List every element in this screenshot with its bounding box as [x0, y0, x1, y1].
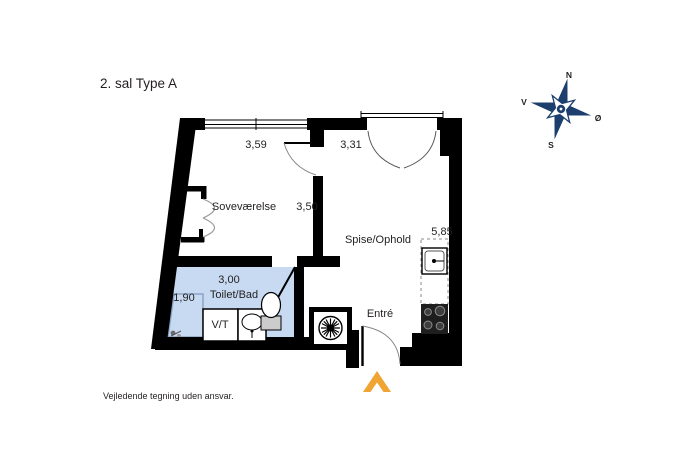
divider-wall — [313, 176, 323, 266]
compass-label-o: Ø — [595, 113, 602, 123]
stove — [421, 304, 448, 334]
dim-bath-depth: 1,90 — [173, 292, 194, 304]
vent-shaft — [314, 312, 347, 344]
balcony-door-right-swing — [404, 131, 436, 168]
bottom-wall-right — [400, 347, 462, 366]
bottom-wall-kitchen — [412, 333, 449, 348]
balcony-door — [361, 111, 443, 168]
bath-top-wall-right — [297, 256, 340, 267]
room-label-toilet-bad: Toilet/Bad — [210, 289, 258, 301]
dim-balcony-door-width: 3,31 — [340, 139, 361, 151]
dim-window-width: 3,59 — [245, 139, 266, 151]
compass-label-v: V — [521, 97, 527, 107]
entrance-door — [363, 326, 401, 366]
compass-label-n: N — [566, 70, 572, 80]
disclaimer-text: Vejledende tegning uden ansvar. — [103, 391, 234, 401]
room-label-entre: Entré — [367, 308, 393, 320]
kitchen — [421, 239, 448, 334]
bath-top-wall-left — [172, 256, 272, 267]
dim-living-depth: 5,85 — [431, 226, 452, 238]
room-label-vt: V/T — [211, 319, 228, 331]
room-label-sovevaerelse: Soveværelse — [212, 201, 276, 213]
balcony-door-left-swing — [368, 131, 400, 168]
dim-bath-width: 3,00 — [218, 274, 239, 286]
page-title: 2. sal Type A — [100, 76, 177, 91]
balcony-railing — [361, 111, 443, 120]
vestibule-left-wall — [346, 330, 359, 368]
top-wall-left-corner — [180, 118, 204, 130]
bathroom-right-wall — [294, 267, 304, 348]
toilet — [261, 293, 281, 331]
compass-label-s: S — [548, 140, 554, 150]
dim-bedroom-depth: 3,50 — [296, 201, 317, 213]
floor-plan-drawing: 2. sal Type A — [0, 0, 687, 457]
compass-rose: N S V Ø — [521, 70, 602, 150]
floor-plan-page: 2. sal Type A — [0, 0, 687, 457]
right-wall-step — [440, 130, 450, 156]
window — [204, 118, 308, 130]
kitchen-sink — [422, 248, 447, 274]
entry-arrow-icon — [363, 371, 391, 392]
bedroom-door-post — [310, 128, 324, 147]
room-label-spise-ophold: Spise/Ophold — [345, 234, 411, 246]
bedroom-door — [284, 143, 316, 175]
